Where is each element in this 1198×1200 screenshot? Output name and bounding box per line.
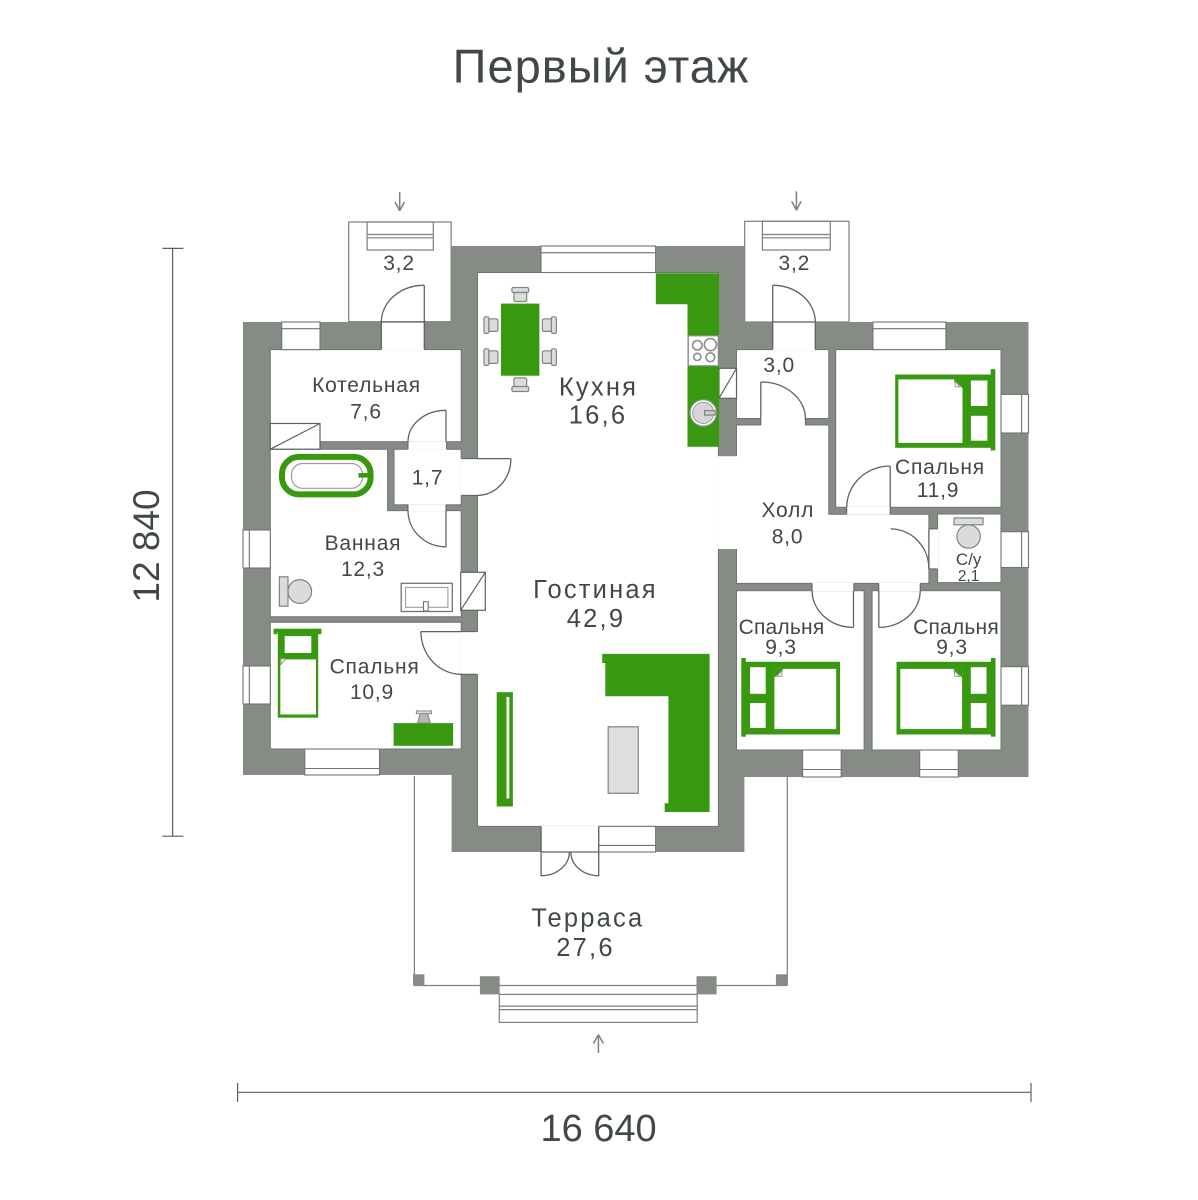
svg-text:12,3: 12,3 (341, 558, 385, 581)
svg-text:Холл: Холл (761, 499, 814, 522)
svg-text:3,0: 3,0 (763, 354, 795, 377)
svg-text:8,0: 8,0 (772, 526, 804, 549)
svg-text:Первый этаж: Первый этаж (453, 40, 750, 93)
svg-text:10,9: 10,9 (350, 681, 394, 704)
svg-text:16 640: 16 640 (540, 1108, 656, 1150)
svg-text:Ванная: Ванная (325, 532, 402, 555)
svg-text:Спальня: Спальня (895, 456, 985, 479)
svg-text:Спальня: Спальня (330, 656, 420, 679)
svg-text:Терраса: Терраса (531, 905, 644, 933)
svg-text:3,2: 3,2 (779, 252, 811, 275)
svg-text:2,1: 2,1 (958, 568, 980, 585)
svg-text:16,6: 16,6 (569, 402, 627, 430)
svg-text:42,9: 42,9 (567, 605, 625, 633)
svg-text:1,7: 1,7 (412, 467, 444, 490)
svg-text:С/у: С/у (956, 550, 982, 569)
svg-text:3,2: 3,2 (383, 252, 415, 275)
svg-text:Гостиная: Гостиная (533, 576, 658, 604)
svg-text:7,6: 7,6 (350, 401, 382, 424)
svg-text:Кухня: Кухня (559, 374, 638, 402)
svg-text:12 840: 12 840 (126, 489, 167, 602)
svg-text:11,9: 11,9 (917, 479, 960, 502)
svg-text:27,6: 27,6 (556, 934, 614, 962)
svg-text:Котельная: Котельная (312, 374, 421, 397)
svg-text:9,3: 9,3 (936, 636, 968, 659)
svg-text:9,3: 9,3 (765, 636, 797, 659)
